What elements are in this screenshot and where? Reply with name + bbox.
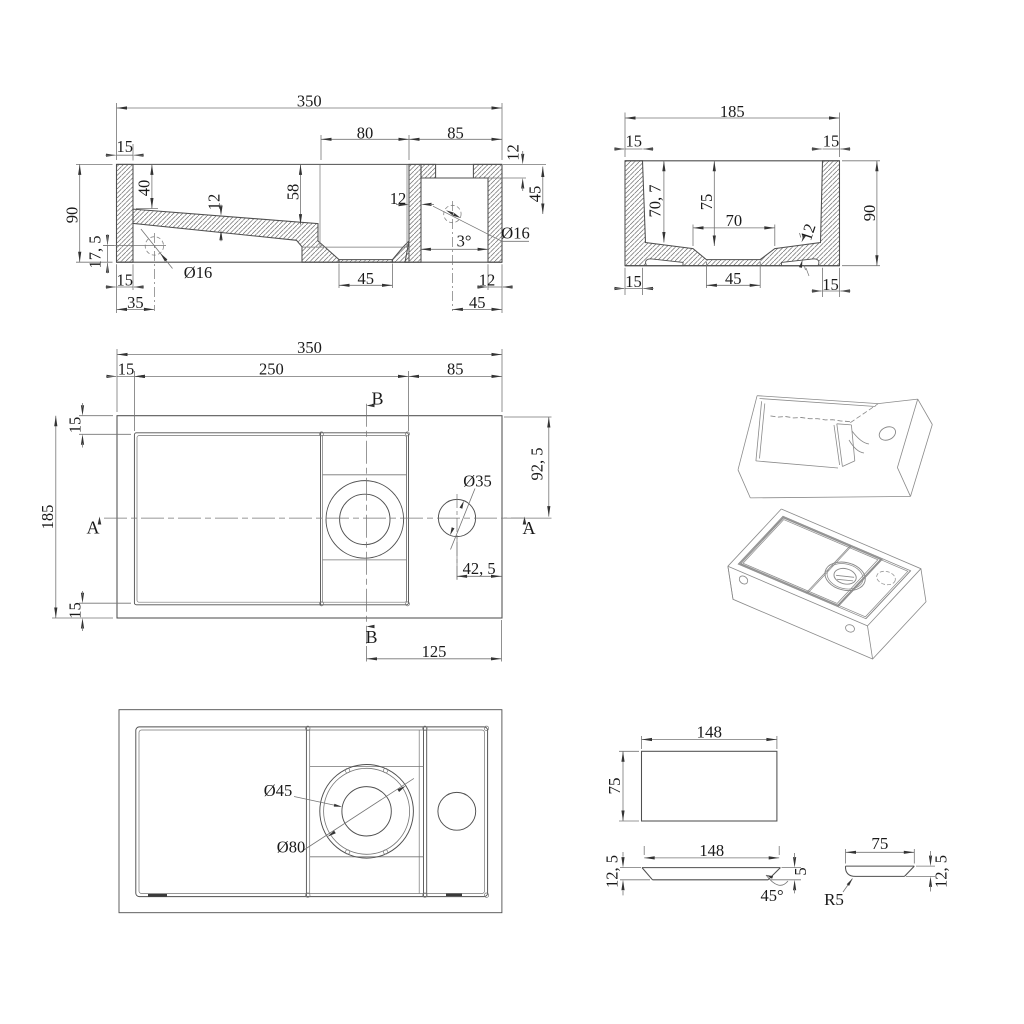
svg-text:Ø45: Ø45 bbox=[264, 781, 292, 800]
svg-text:85: 85 bbox=[447, 360, 464, 379]
svg-text:70: 70 bbox=[726, 211, 743, 230]
svg-text:12: 12 bbox=[390, 189, 407, 208]
svg-text:15: 15 bbox=[625, 272, 642, 291]
svg-text:58: 58 bbox=[284, 184, 303, 201]
svg-text:15: 15 bbox=[117, 271, 134, 290]
svg-text:15: 15 bbox=[822, 275, 839, 294]
svg-text:15: 15 bbox=[626, 132, 643, 151]
svg-text:90: 90 bbox=[860, 205, 879, 222]
svg-text:185: 185 bbox=[720, 102, 745, 121]
svg-text:Ø35: Ø35 bbox=[463, 472, 491, 491]
svg-text:15: 15 bbox=[66, 602, 85, 619]
svg-text:90: 90 bbox=[63, 207, 82, 224]
svg-text:350: 350 bbox=[297, 338, 322, 357]
svg-text:15: 15 bbox=[117, 137, 134, 156]
svg-text:80: 80 bbox=[357, 124, 374, 143]
svg-text:12: 12 bbox=[504, 144, 523, 161]
svg-text:B: B bbox=[365, 627, 377, 647]
svg-text:75: 75 bbox=[605, 778, 624, 795]
svg-text:15: 15 bbox=[118, 360, 135, 379]
svg-text:12: 12 bbox=[205, 194, 224, 211]
svg-text:12, 5: 12, 5 bbox=[932, 855, 951, 888]
svg-text:42, 5: 42, 5 bbox=[463, 559, 496, 578]
svg-text:17, 5: 17, 5 bbox=[86, 236, 105, 269]
svg-text:12: 12 bbox=[479, 271, 496, 290]
svg-text:15: 15 bbox=[823, 132, 840, 151]
svg-text:Ø16: Ø16 bbox=[184, 263, 212, 282]
svg-text:350: 350 bbox=[297, 92, 322, 111]
svg-text:85: 85 bbox=[447, 124, 464, 143]
svg-text:35: 35 bbox=[127, 293, 144, 312]
svg-text:40: 40 bbox=[135, 180, 154, 197]
svg-text:148: 148 bbox=[699, 841, 724, 860]
svg-text:3°: 3° bbox=[457, 232, 472, 251]
svg-text:148: 148 bbox=[696, 723, 722, 742]
svg-text:R5: R5 bbox=[824, 890, 844, 909]
svg-text:15: 15 bbox=[66, 417, 85, 434]
svg-text:12, 5: 12, 5 bbox=[603, 855, 622, 888]
svg-text:45: 45 bbox=[358, 269, 375, 288]
svg-text:5: 5 bbox=[791, 867, 810, 875]
svg-text:45: 45 bbox=[725, 269, 742, 288]
svg-text:Ø16: Ø16 bbox=[501, 224, 529, 243]
svg-text:45°: 45° bbox=[760, 886, 783, 905]
svg-text:75: 75 bbox=[871, 834, 888, 853]
svg-text:185: 185 bbox=[38, 505, 57, 530]
svg-text:45: 45 bbox=[469, 293, 486, 312]
svg-text:45: 45 bbox=[526, 186, 545, 203]
svg-text:92, 5: 92, 5 bbox=[528, 448, 547, 481]
svg-text:75: 75 bbox=[697, 194, 716, 211]
svg-text:Ø80: Ø80 bbox=[277, 838, 305, 857]
svg-text:125: 125 bbox=[422, 642, 447, 661]
svg-text:70, 7: 70, 7 bbox=[646, 185, 665, 218]
svg-text:A: A bbox=[87, 518, 100, 538]
svg-text:250: 250 bbox=[259, 360, 284, 379]
